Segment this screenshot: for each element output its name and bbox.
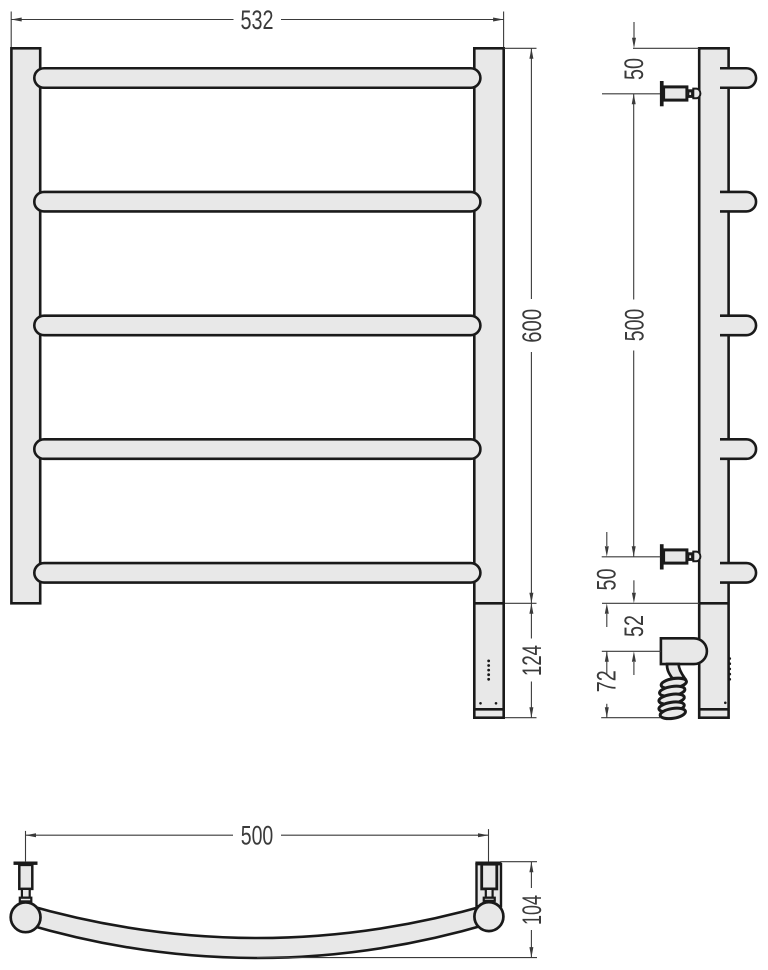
svg-text:124: 124 — [517, 645, 547, 676]
svg-text:532: 532 — [241, 5, 274, 35]
svg-text:50: 50 — [619, 58, 649, 80]
svg-text:50: 50 — [592, 569, 622, 591]
svg-text:52: 52 — [619, 615, 649, 637]
svg-text:500: 500 — [241, 821, 274, 851]
svg-text:600: 600 — [517, 309, 547, 343]
svg-text:500: 500 — [619, 309, 649, 342]
svg-text:104: 104 — [517, 895, 547, 925]
svg-text:72: 72 — [592, 670, 622, 692]
